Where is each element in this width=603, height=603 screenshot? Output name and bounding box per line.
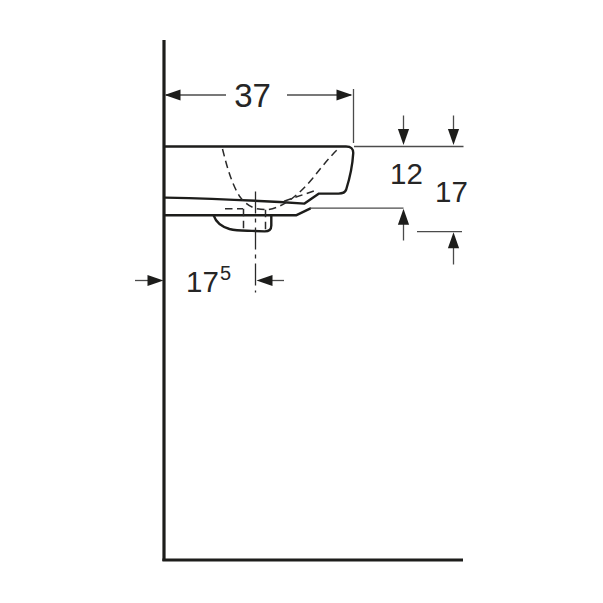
down-arrow-12-icon <box>398 129 409 145</box>
rim-to-underside-label: 12 <box>390 157 423 190</box>
wall-to-drain-center-label: 17 <box>186 265 219 298</box>
offset-arrow-right-icon <box>257 275 273 286</box>
up-arrow-12-icon <box>398 209 409 225</box>
basin-outline <box>166 147 354 204</box>
up-arrow-17-icon <box>448 232 459 248</box>
down-arrow-17-icon <box>448 129 459 145</box>
basin-depth-label: 37 <box>234 77 271 114</box>
wall-to-drain-center-superscript: 5 <box>220 262 231 284</box>
dimension-labels: 37 12 17 17 5 <box>186 77 468 299</box>
mounting-ledge-bottom <box>166 209 311 216</box>
structure-lines <box>162 40 463 561</box>
hidden-lines <box>223 149 339 231</box>
side-elevation-canvas: 37 12 17 17 5 <box>0 0 603 603</box>
offset-arrow-left-icon <box>148 275 164 286</box>
width-arrow-left-icon <box>165 89 181 100</box>
rim-to-trap-bottom-label: 17 <box>435 175 468 208</box>
width-arrow-right-icon <box>337 89 353 100</box>
washbasin-dimension-drawing: 37 12 17 17 5 <box>0 0 603 603</box>
drain-trap-boss <box>214 215 272 231</box>
basin-profile <box>166 147 354 232</box>
